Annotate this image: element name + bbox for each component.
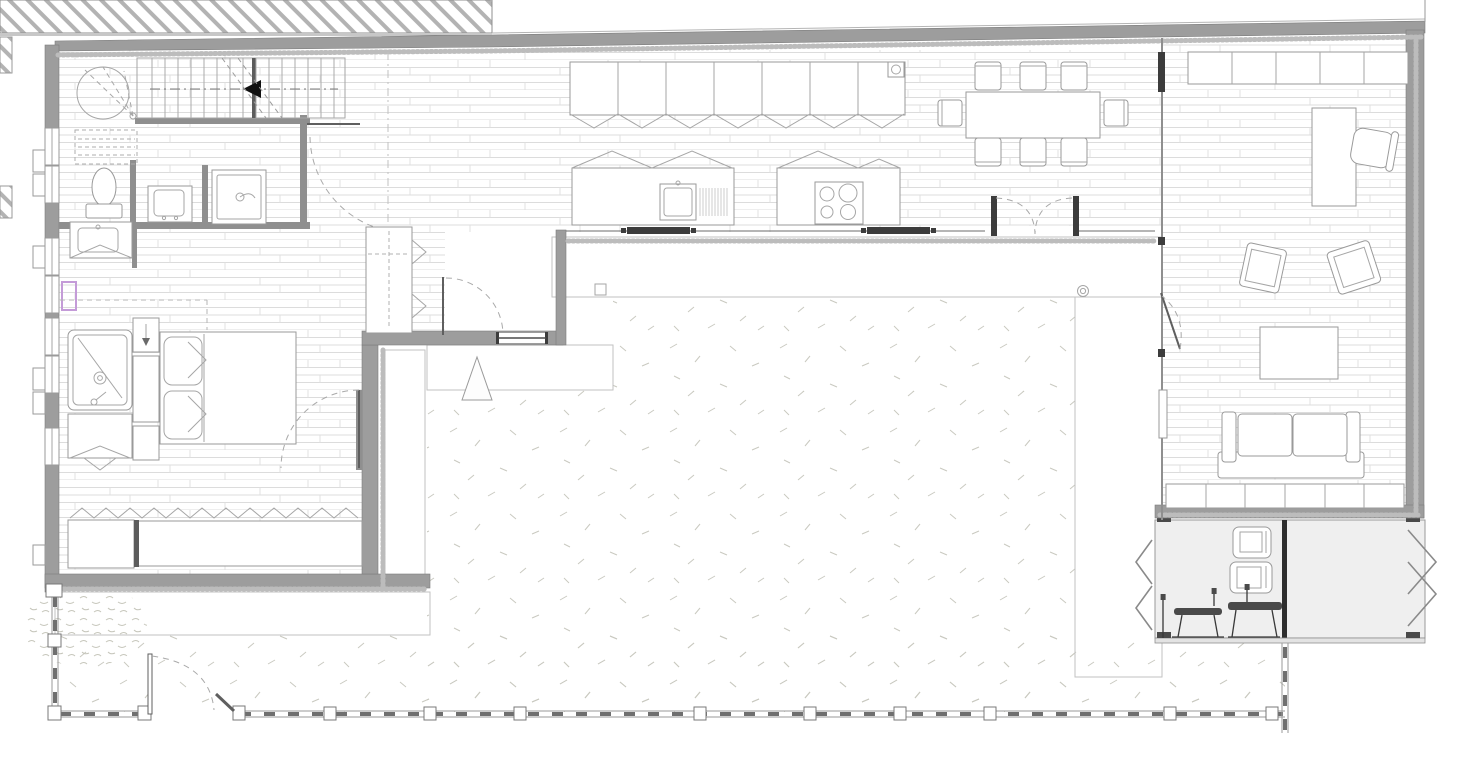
neighbor-building-hatch <box>0 0 492 33</box>
deck-appliance-2 <box>1230 562 1272 593</box>
stone-band-top <box>552 237 1162 297</box>
walk-in-shower <box>68 330 132 410</box>
hand-basin <box>148 186 192 222</box>
floor-plan-drawing: Courtyard Deck <box>0 0 1480 762</box>
stone-band-left <box>385 350 425 592</box>
shower-cabin <box>212 170 266 224</box>
sliding-panel <box>627 227 690 234</box>
living-west-window <box>1159 390 1167 438</box>
desk <box>1312 108 1356 206</box>
courtyard-triangle-marker <box>462 357 492 400</box>
wall-south-left-wing <box>45 574 430 588</box>
entry-door-arc <box>446 278 503 335</box>
sofa-cushion <box>1293 414 1347 456</box>
double-bed <box>160 332 296 444</box>
boundary-hatch-strip <box>0 186 12 218</box>
deck-south-rail <box>1155 638 1425 643</box>
deck: Deck <box>1136 516 1436 643</box>
stone-detail-box <box>595 284 606 295</box>
deck-surface <box>1155 520 1425 638</box>
vanity-basin <box>70 222 132 258</box>
porch-post <box>556 230 566 345</box>
dining-table <box>966 92 1100 138</box>
media-bench <box>1166 484 1404 508</box>
deck-center-divider <box>1282 520 1287 638</box>
sofa <box>1218 412 1364 478</box>
armchair <box>1239 242 1287 293</box>
shutter-boxes <box>33 150 45 565</box>
sideboard <box>1188 52 1408 84</box>
wall-east-left-wing <box>362 345 378 574</box>
cooktop <box>815 182 863 224</box>
drain-icon <box>1078 286 1089 297</box>
floor-left-wing <box>59 50 362 575</box>
floor-plan-page: Courtyard Deck <box>0 0 1480 762</box>
porch-window <box>496 332 548 344</box>
wardrobe-column <box>133 318 159 460</box>
coffee-table <box>1260 327 1338 379</box>
folding-screen-left <box>1136 540 1152 630</box>
sliding-panel <box>867 227 930 234</box>
sofa-cushion <box>1238 414 1292 456</box>
living-west-jamb-top <box>1158 52 1165 92</box>
boundary-hatch-strip <box>0 37 12 73</box>
gate-leaf-open <box>148 654 152 714</box>
shrub-patch <box>23 583 147 667</box>
deck-appliance-1 <box>1233 527 1271 558</box>
stone-band-entry-steps <box>427 345 613 390</box>
stone-band-right <box>1075 297 1162 677</box>
